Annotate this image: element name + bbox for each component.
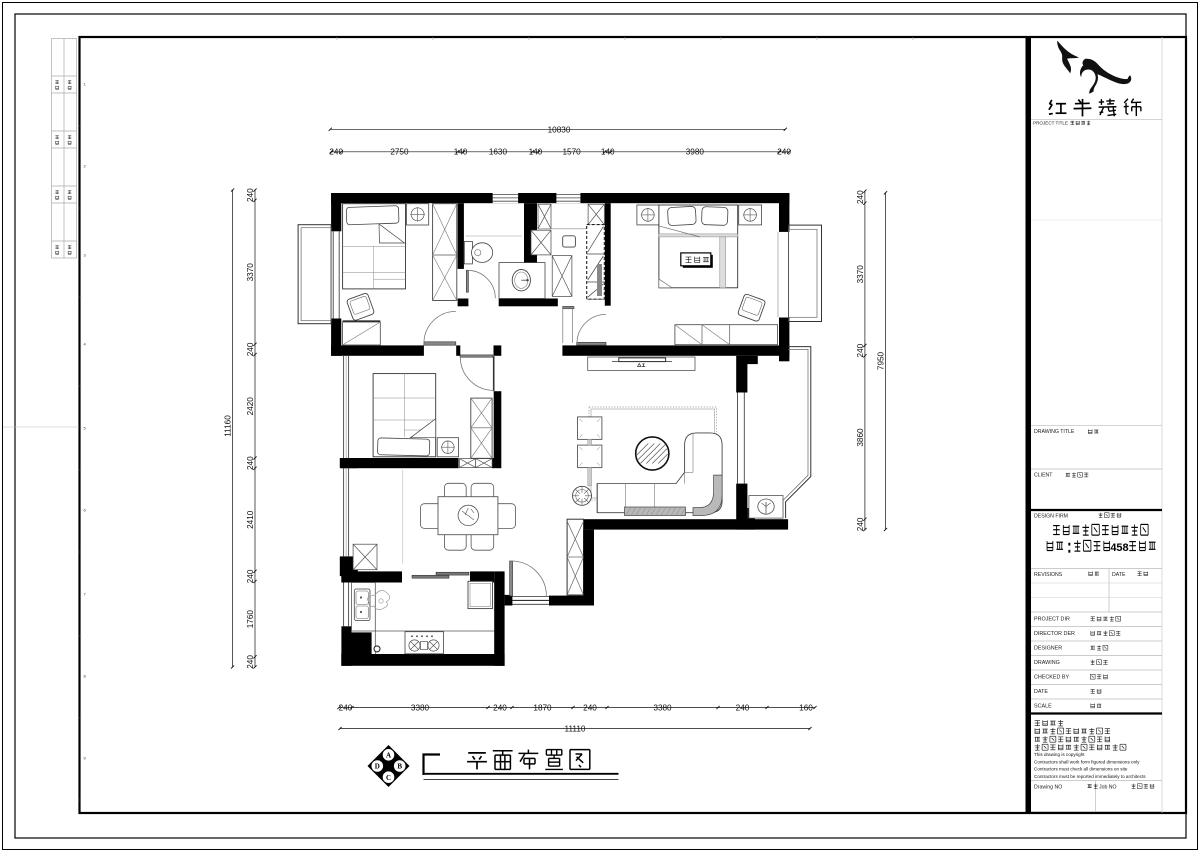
svg-text:240: 240 xyxy=(246,456,255,470)
svg-text:240: 240 xyxy=(246,655,255,669)
svg-text:1870: 1870 xyxy=(533,703,552,712)
svg-text:240: 240 xyxy=(493,703,507,712)
svg-text:Contractors shall work form fi: Contractors shall work form figured dime… xyxy=(1034,759,1140,764)
svg-text:3860: 3860 xyxy=(856,428,865,447)
svg-text:140: 140 xyxy=(529,148,543,157)
svg-text:240: 240 xyxy=(856,190,865,204)
svg-text:DRAWING TITLE: DRAWING TITLE xyxy=(1034,429,1075,435)
svg-text:3380: 3380 xyxy=(411,703,430,712)
svg-text:DIRECTOR DER: DIRECTOR DER xyxy=(1034,631,1075,637)
svg-text:2750: 2750 xyxy=(390,148,409,157)
svg-text:1570: 1570 xyxy=(562,148,581,157)
svg-text:140: 140 xyxy=(454,148,468,157)
svg-text:240: 240 xyxy=(339,703,353,712)
svg-text:PROJECT TITLE: PROJECT TITLE xyxy=(1033,121,1068,126)
svg-text:240: 240 xyxy=(329,148,343,157)
svg-text:140: 140 xyxy=(601,148,615,157)
svg-text:240: 240 xyxy=(736,703,750,712)
svg-text:160: 160 xyxy=(799,703,813,712)
svg-text:240: 240 xyxy=(246,569,255,583)
svg-text:240: 240 xyxy=(856,343,865,357)
svg-text:CHECKED BY: CHECKED BY xyxy=(1034,675,1069,681)
svg-text:240: 240 xyxy=(583,703,597,712)
svg-text:2410: 2410 xyxy=(246,510,255,529)
svg-text:11110: 11110 xyxy=(565,724,586,733)
svg-text:7950: 7950 xyxy=(876,351,885,370)
svg-text:11160: 11160 xyxy=(223,415,232,437)
svg-text:1630: 1630 xyxy=(489,148,508,157)
svg-text:DESIGNER: DESIGNER xyxy=(1034,646,1062,652)
svg-text:A: A xyxy=(386,751,391,759)
svg-text:2420: 2420 xyxy=(246,397,255,416)
svg-text:3380: 3380 xyxy=(653,703,672,712)
svg-text:3370: 3370 xyxy=(246,263,255,282)
svg-text:CLIENT: CLIENT xyxy=(1034,473,1053,479)
svg-text:3370: 3370 xyxy=(856,265,865,284)
svg-text:D: D xyxy=(375,763,380,771)
svg-text:C: C xyxy=(386,774,391,782)
svg-text:Contractors must check all dim: Contractors must check all dimensions on… xyxy=(1034,767,1128,772)
svg-text:SCALE: SCALE xyxy=(1034,704,1052,710)
svg-text:240: 240 xyxy=(246,342,255,356)
svg-text:This drawing is copyright: This drawing is copyright xyxy=(1034,752,1085,757)
svg-text:DRAWING: DRAWING xyxy=(1034,660,1060,666)
svg-text:B: B xyxy=(397,763,402,771)
svg-text:1760: 1760 xyxy=(246,610,255,629)
svg-text:Contractors must be reported i: Contractors must be reported immediately… xyxy=(1034,774,1146,779)
svg-text:Job NO: Job NO xyxy=(1099,785,1117,791)
svg-text:DATE: DATE xyxy=(1034,689,1048,695)
svg-text:3980: 3980 xyxy=(686,148,705,157)
svg-text:458: 458 xyxy=(1110,542,1128,554)
svg-text:DATE: DATE xyxy=(1112,572,1126,578)
svg-text:DESIGN FIRM: DESIGN FIRM xyxy=(1034,514,1068,520)
svg-text:10830: 10830 xyxy=(548,125,571,134)
svg-text:240: 240 xyxy=(856,517,865,531)
svg-text:REVISIONS: REVISIONS xyxy=(1034,572,1063,578)
svg-text:Drawing NO: Drawing NO xyxy=(1034,785,1062,791)
svg-text:PROJECT DIR: PROJECT DIR xyxy=(1034,617,1070,623)
svg-text:240: 240 xyxy=(777,148,791,157)
svg-text:240: 240 xyxy=(246,188,255,202)
